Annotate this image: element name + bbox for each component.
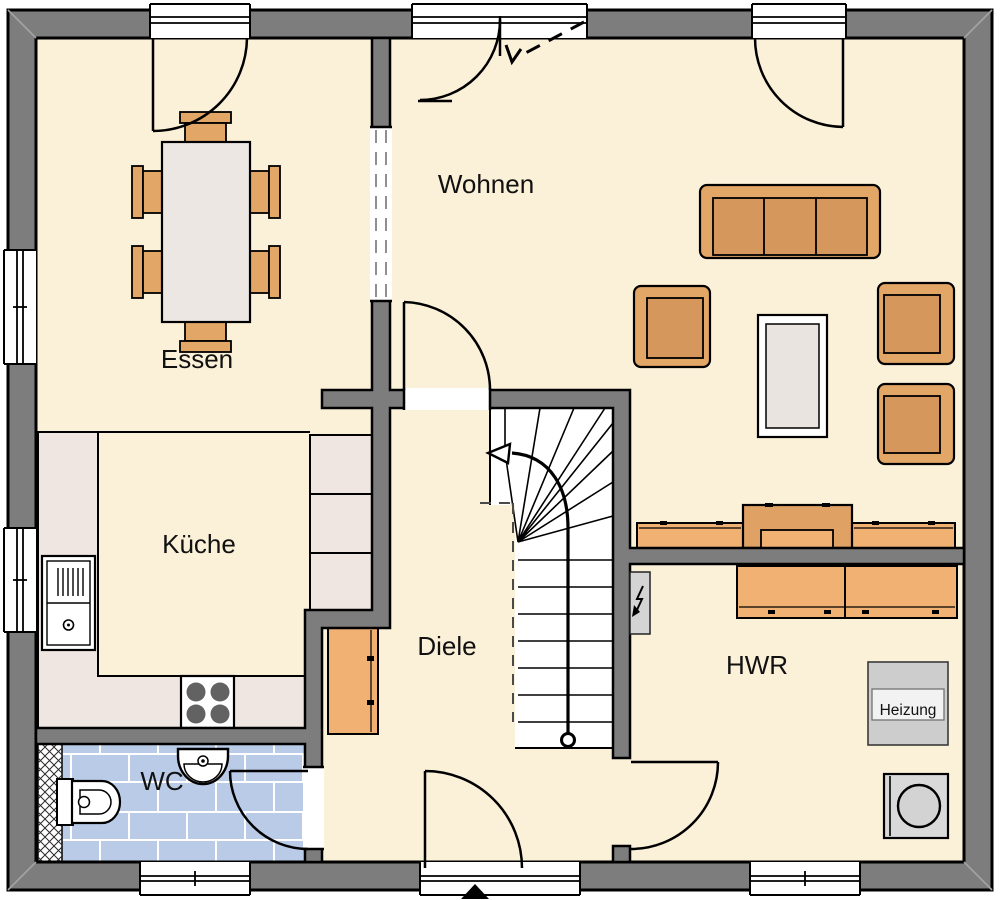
room-label-essen: Essen: [161, 344, 233, 374]
heating-unit: Heizung: [868, 662, 948, 745]
room-label-wohnen: Wohnen: [438, 169, 534, 199]
cooktop: [181, 676, 234, 728]
terrace-door-essen: [150, 4, 250, 38]
armchair-seat: [884, 295, 940, 353]
chair: [248, 251, 269, 293]
chair: [185, 321, 226, 341]
chair: [248, 171, 269, 213]
sink-unit: [42, 556, 95, 650]
coffee-table-top: [766, 324, 819, 428]
kitchen-tall-cabinet: [310, 553, 372, 612]
room-label-wc: WC: [140, 766, 183, 796]
chair: [269, 246, 280, 298]
wardrobe: [328, 628, 378, 734]
sideboard: [852, 523, 955, 548]
washing-machine: [884, 774, 948, 838]
toilet: [57, 779, 120, 825]
dining-table: [162, 142, 250, 322]
door-opening-wc: [303, 767, 324, 849]
window-hwr: [750, 862, 860, 895]
electrical-panel: [630, 572, 650, 634]
armchair-seat: [647, 298, 703, 358]
wall-stub: [613, 846, 630, 862]
chair: [132, 166, 143, 218]
pass-through-opening: [370, 127, 392, 301]
terrace-door-wohnen-2: [752, 4, 846, 38]
floor-plan-drawing: Heizung: [0, 0, 1000, 900]
heizung-label: Heizung: [880, 702, 937, 719]
armchair-seat: [884, 396, 940, 453]
chair: [143, 171, 164, 213]
sofa-seats: [713, 198, 867, 255]
window-kueche: [4, 528, 36, 632]
room-label-diele: Diele: [417, 631, 476, 661]
hwr-cabinets: [737, 566, 957, 618]
chair: [185, 123, 226, 143]
kitchen-tall-cabinet: [310, 435, 372, 494]
room-label-hwr: HWR: [726, 650, 788, 680]
chair: [269, 166, 280, 218]
floor-plan: Heizung: [0, 0, 1000, 900]
sideboard: [637, 523, 743, 548]
entrance-opening: [420, 862, 580, 895]
desk-stool: [761, 530, 833, 548]
chair: [143, 251, 164, 293]
room-label-kueche: Küche: [162, 529, 236, 559]
window-wc: [140, 862, 250, 895]
kitchen-tall-cabinet: [310, 494, 372, 553]
window-essen: [4, 250, 36, 364]
door-opening-diele: [404, 388, 490, 410]
chair: [132, 246, 143, 298]
